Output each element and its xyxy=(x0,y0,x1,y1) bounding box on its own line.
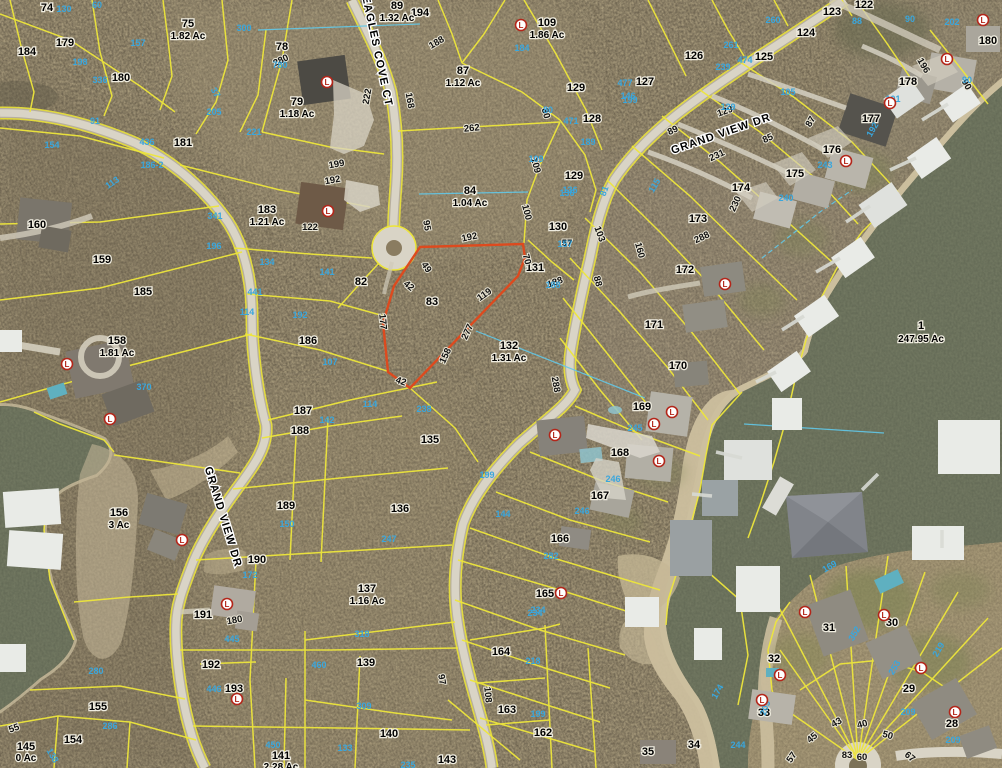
svg-text:174: 174 xyxy=(732,182,751,194)
svg-text:135: 135 xyxy=(421,434,439,446)
svg-text:1.16 Ac: 1.16 Ac xyxy=(350,596,385,607)
svg-text:477: 477 xyxy=(617,78,632,88)
svg-text:246: 246 xyxy=(574,506,589,516)
svg-text:247.95 Ac: 247.95 Ac xyxy=(898,334,944,345)
svg-text:144: 144 xyxy=(495,509,510,519)
svg-text:154: 154 xyxy=(64,734,83,746)
svg-text:136: 136 xyxy=(559,188,574,198)
svg-text:282: 282 xyxy=(543,551,558,561)
svg-text:L: L xyxy=(225,600,230,609)
svg-text:L: L xyxy=(844,157,849,166)
svg-text:137: 137 xyxy=(358,583,376,595)
svg-text:32: 32 xyxy=(768,653,780,665)
svg-text:L: L xyxy=(235,695,240,704)
svg-text:300: 300 xyxy=(236,23,251,33)
svg-text:163: 163 xyxy=(498,704,516,716)
svg-text:60: 60 xyxy=(857,752,868,763)
svg-text:184: 184 xyxy=(18,46,37,58)
svg-text:0 Ac: 0 Ac xyxy=(16,753,37,764)
svg-text:176: 176 xyxy=(823,144,841,156)
svg-text:L: L xyxy=(882,611,887,620)
svg-text:169: 169 xyxy=(633,401,651,413)
svg-text:188: 188 xyxy=(545,280,560,290)
svg-text:177: 177 xyxy=(376,313,388,330)
svg-text:L: L xyxy=(325,78,330,87)
svg-text:309: 309 xyxy=(356,701,371,711)
svg-text:460: 460 xyxy=(311,660,326,670)
svg-text:341: 341 xyxy=(207,211,222,221)
svg-text:188: 188 xyxy=(291,425,309,437)
svg-text:34: 34 xyxy=(688,739,701,751)
svg-text:157: 157 xyxy=(557,239,572,249)
svg-text:202: 202 xyxy=(944,17,959,27)
svg-text:247: 247 xyxy=(381,534,396,544)
svg-text:235: 235 xyxy=(400,760,415,768)
svg-text:159: 159 xyxy=(93,254,111,266)
svg-text:1.32 Ac: 1.32 Ac xyxy=(380,13,415,24)
svg-text:87: 87 xyxy=(457,65,469,77)
svg-text:141: 141 xyxy=(272,750,290,762)
svg-text:164: 164 xyxy=(492,646,511,658)
svg-text:193: 193 xyxy=(225,683,243,695)
svg-text:91: 91 xyxy=(90,116,100,126)
svg-text:136: 136 xyxy=(391,503,409,515)
svg-text:318: 318 xyxy=(354,629,369,639)
svg-text:143: 143 xyxy=(438,754,456,766)
svg-text:474: 474 xyxy=(737,55,752,65)
svg-text:35: 35 xyxy=(642,746,654,758)
svg-text:1.04 Ac: 1.04 Ac xyxy=(453,198,488,209)
svg-text:186-2: 186-2 xyxy=(140,160,163,170)
svg-text:261: 261 xyxy=(723,40,738,50)
svg-text:240: 240 xyxy=(778,193,793,203)
svg-text:78: 78 xyxy=(276,41,288,53)
svg-text:246: 246 xyxy=(605,474,620,484)
svg-text:450: 450 xyxy=(265,740,280,750)
svg-text:140: 140 xyxy=(380,728,398,740)
svg-text:198: 198 xyxy=(72,57,87,67)
svg-text:L: L xyxy=(559,589,564,598)
svg-text:90: 90 xyxy=(905,14,915,24)
svg-text:130: 130 xyxy=(56,4,71,14)
svg-text:127: 127 xyxy=(636,76,654,88)
svg-text:170: 170 xyxy=(669,360,687,372)
svg-text:97: 97 xyxy=(435,673,448,685)
svg-text:L: L xyxy=(803,608,808,617)
svg-text:445: 445 xyxy=(224,634,239,644)
svg-text:83: 83 xyxy=(842,750,853,761)
svg-text:3 Ac: 3 Ac xyxy=(109,520,130,531)
svg-text:130: 130 xyxy=(549,221,567,233)
svg-text:172: 172 xyxy=(676,264,694,276)
svg-text:90: 90 xyxy=(962,75,972,85)
svg-text:199: 199 xyxy=(479,470,494,480)
svg-text:80: 80 xyxy=(543,105,553,115)
svg-text:199: 199 xyxy=(530,709,545,719)
svg-text:126: 126 xyxy=(685,50,703,62)
svg-text:187: 187 xyxy=(294,405,312,417)
svg-text:167: 167 xyxy=(591,490,609,502)
svg-text:185: 185 xyxy=(134,286,152,298)
svg-text:184: 184 xyxy=(514,43,529,53)
svg-text:196: 196 xyxy=(206,241,221,251)
svg-text:780: 780 xyxy=(272,60,287,70)
svg-text:150: 150 xyxy=(279,519,294,529)
svg-text:L: L xyxy=(553,431,558,440)
svg-text:178: 178 xyxy=(899,76,917,88)
svg-text:L: L xyxy=(108,415,113,424)
svg-text:162: 162 xyxy=(534,727,552,739)
svg-text:108: 108 xyxy=(481,686,493,703)
svg-text:166: 166 xyxy=(551,533,569,545)
svg-text:1: 1 xyxy=(918,320,924,332)
svg-text:L: L xyxy=(945,55,950,64)
svg-text:L: L xyxy=(778,671,783,680)
svg-text:192: 192 xyxy=(292,310,307,320)
svg-text:243: 243 xyxy=(817,160,832,170)
svg-text:1.12 Ac: 1.12 Ac xyxy=(446,78,481,89)
svg-text:124: 124 xyxy=(797,27,816,39)
svg-text:128: 128 xyxy=(583,113,601,125)
svg-text:370: 370 xyxy=(136,382,151,392)
svg-text:125: 125 xyxy=(755,51,773,63)
svg-text:239: 239 xyxy=(715,62,730,72)
svg-text:180: 180 xyxy=(112,72,130,84)
svg-text:L: L xyxy=(519,21,524,30)
svg-text:88: 88 xyxy=(852,16,862,26)
svg-text:141: 141 xyxy=(319,267,334,277)
svg-text:189: 189 xyxy=(580,137,595,147)
svg-text:122: 122 xyxy=(302,222,318,233)
svg-text:1.21 Ac: 1.21 Ac xyxy=(250,217,285,228)
svg-text:L: L xyxy=(657,457,662,466)
svg-text:209: 209 xyxy=(945,735,960,745)
svg-text:105: 105 xyxy=(780,87,795,97)
svg-text:L: L xyxy=(180,536,185,545)
svg-text:109: 109 xyxy=(538,17,556,29)
svg-text:L: L xyxy=(723,280,728,289)
svg-text:74: 74 xyxy=(41,2,54,14)
svg-text:336: 336 xyxy=(92,75,107,85)
svg-text:132: 132 xyxy=(500,340,518,352)
svg-text:145: 145 xyxy=(17,741,35,753)
svg-text:L: L xyxy=(888,99,893,108)
svg-text:L: L xyxy=(652,420,657,429)
svg-text:82: 82 xyxy=(355,276,367,288)
svg-text:114: 114 xyxy=(363,399,378,409)
svg-text:179: 179 xyxy=(56,37,74,49)
svg-text:168: 168 xyxy=(611,447,629,459)
svg-text:286: 286 xyxy=(102,721,117,731)
svg-text:245: 245 xyxy=(627,423,642,433)
svg-text:156: 156 xyxy=(110,507,128,519)
svg-text:129: 129 xyxy=(567,82,585,94)
svg-text:175: 175 xyxy=(786,168,804,180)
svg-text:262: 262 xyxy=(463,122,480,134)
svg-text:L: L xyxy=(326,207,331,216)
svg-text:L: L xyxy=(670,408,675,417)
svg-text:171: 171 xyxy=(645,319,663,331)
svg-text:129: 129 xyxy=(565,170,583,182)
svg-text:123: 123 xyxy=(823,6,841,18)
svg-text:191: 191 xyxy=(194,609,212,621)
svg-text:107: 107 xyxy=(322,357,337,367)
svg-text:154: 154 xyxy=(44,140,59,150)
svg-text:441: 441 xyxy=(247,287,262,297)
svg-text:280: 280 xyxy=(88,666,103,676)
svg-text:1.86 Ac: 1.86 Ac xyxy=(530,30,565,41)
svg-text:60: 60 xyxy=(92,0,102,10)
svg-text:133: 133 xyxy=(337,743,352,753)
svg-text:190: 190 xyxy=(248,554,266,566)
svg-text:436: 436 xyxy=(139,137,154,147)
svg-text:1.31 Ac: 1.31 Ac xyxy=(492,353,527,364)
svg-text:L: L xyxy=(919,664,924,673)
svg-text:134: 134 xyxy=(259,257,274,267)
svg-text:205: 205 xyxy=(206,107,221,117)
svg-text:75: 75 xyxy=(182,18,194,30)
svg-text:221: 221 xyxy=(246,127,261,137)
svg-text:142: 142 xyxy=(319,415,334,425)
svg-text:146: 146 xyxy=(620,91,635,101)
svg-text:173: 173 xyxy=(689,213,707,225)
svg-text:2.28 Ac: 2.28 Ac xyxy=(264,762,299,768)
svg-text:84: 84 xyxy=(464,185,477,197)
svg-text:180: 180 xyxy=(979,35,997,47)
svg-text:L: L xyxy=(981,16,986,25)
svg-text:238: 238 xyxy=(416,404,431,414)
svg-text:109: 109 xyxy=(528,154,543,164)
svg-text:31: 31 xyxy=(823,622,835,634)
svg-text:155: 155 xyxy=(89,701,107,713)
svg-text:165: 165 xyxy=(536,588,554,600)
svg-text:122: 122 xyxy=(855,0,873,11)
svg-text:129: 129 xyxy=(720,102,735,112)
svg-text:160: 160 xyxy=(28,219,46,231)
svg-text:114: 114 xyxy=(240,307,255,317)
svg-text:89: 89 xyxy=(391,0,403,12)
svg-text:139: 139 xyxy=(357,657,375,669)
svg-text:158: 158 xyxy=(108,335,126,347)
svg-text:183: 183 xyxy=(258,204,276,216)
svg-text:446: 446 xyxy=(206,684,221,694)
svg-text:181: 181 xyxy=(174,137,192,149)
svg-text:234: 234 xyxy=(530,605,545,615)
svg-text:260: 260 xyxy=(765,15,780,25)
svg-text:244: 244 xyxy=(730,740,745,750)
svg-text:1.81 Ac: 1.81 Ac xyxy=(100,348,135,359)
svg-text:186: 186 xyxy=(299,335,317,347)
svg-text:29: 29 xyxy=(903,683,915,695)
svg-text:28: 28 xyxy=(946,718,958,730)
svg-text:172: 172 xyxy=(242,570,257,580)
svg-text:83: 83 xyxy=(426,296,438,308)
svg-text:209: 209 xyxy=(900,707,915,717)
svg-text:471: 471 xyxy=(563,116,578,126)
svg-text:1.18 Ac: 1.18 Ac xyxy=(280,109,315,120)
svg-text:L: L xyxy=(65,360,70,369)
svg-text:L: L xyxy=(760,696,765,705)
svg-text:79: 79 xyxy=(291,96,303,108)
svg-text:218: 218 xyxy=(525,656,540,666)
svg-text:L: L xyxy=(953,708,958,717)
svg-text:192: 192 xyxy=(202,659,220,671)
svg-text:1.82 Ac: 1.82 Ac xyxy=(171,31,206,42)
svg-text:189: 189 xyxy=(277,500,295,512)
svg-text:157: 157 xyxy=(130,38,145,48)
